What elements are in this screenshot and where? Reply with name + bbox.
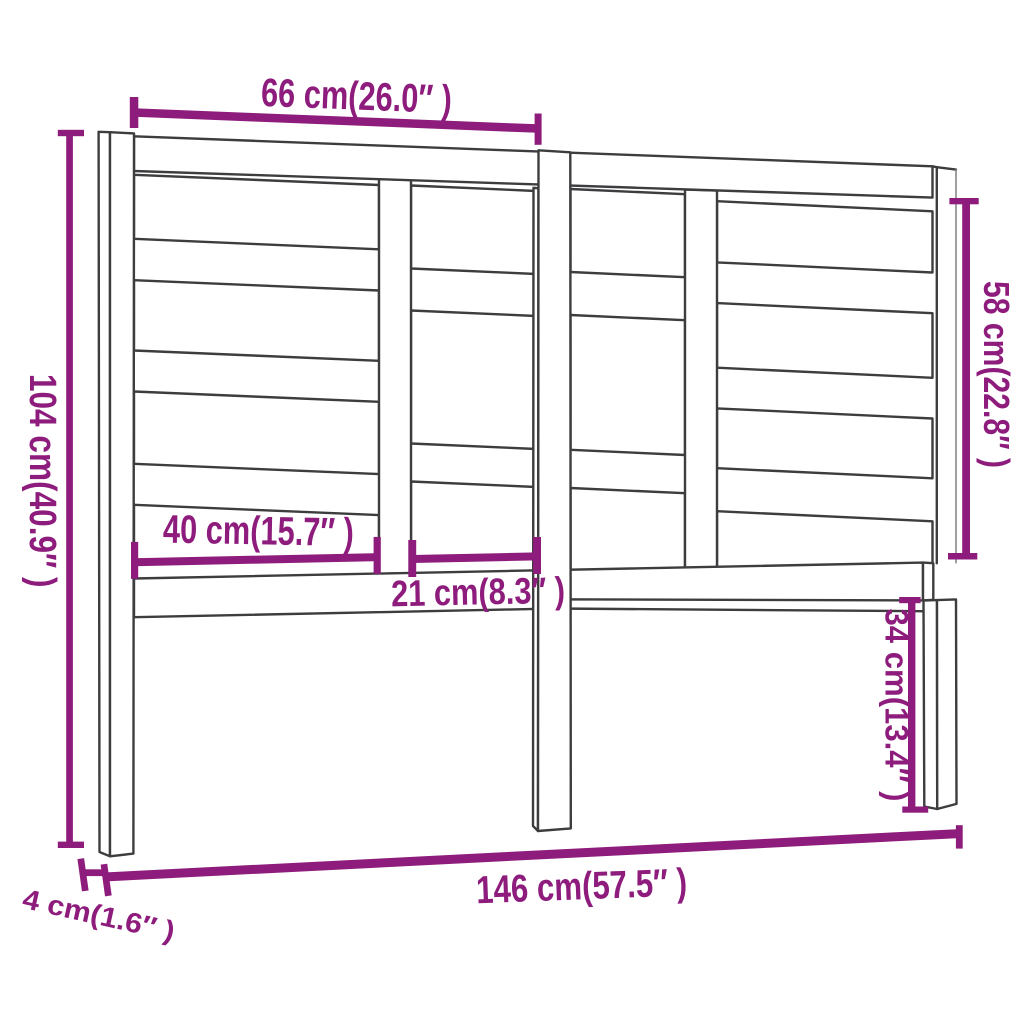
svg-text:66 cm(26.0″ ): 66 cm(26.0″ )	[260, 71, 453, 122]
svg-text:58 cm(22.8″ ): 58 cm(22.8″ )	[976, 281, 1017, 468]
svg-text:146 cm(57.5″ ): 146 cm(57.5″ )	[475, 861, 687, 912]
svg-text:21 cm(8.3″ ): 21 cm(8.3″ )	[391, 570, 566, 615]
svg-text:34 cm(13.4″ ): 34 cm(13.4″ )	[878, 609, 914, 802]
svg-text:40 cm(15.7″ ): 40 cm(15.7″ )	[163, 508, 355, 555]
svg-text:104 cm(40.9″ ): 104 cm(40.9″ )	[21, 374, 63, 588]
